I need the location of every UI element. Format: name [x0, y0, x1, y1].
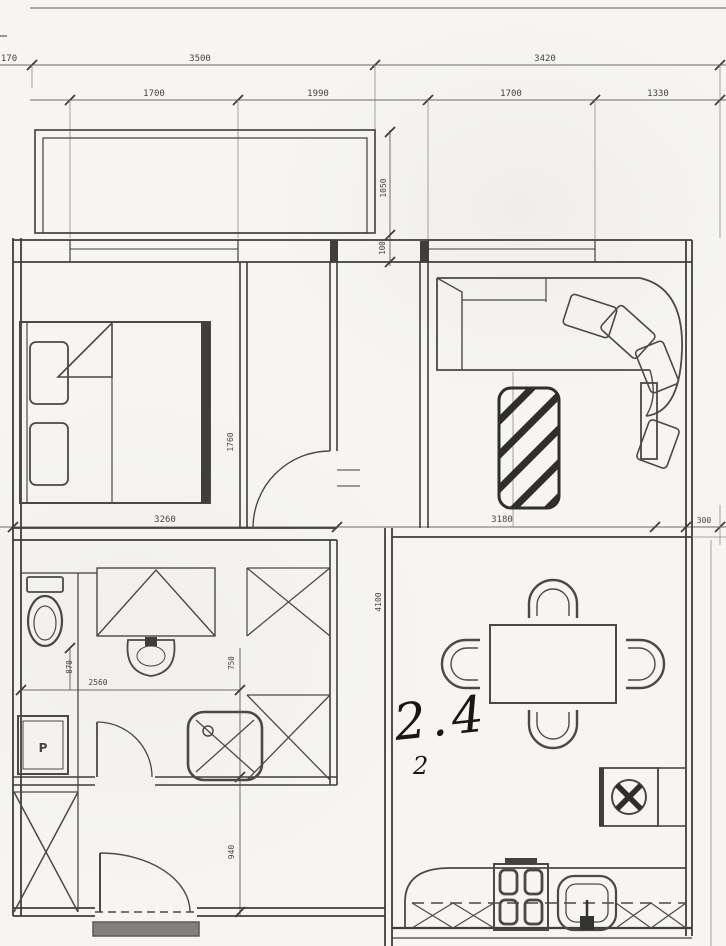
burner — [500, 870, 517, 894]
walls — [13, 238, 726, 946]
duct-shaft — [97, 568, 215, 636]
dim-hall-depth: 940 — [227, 845, 236, 860]
dim-right-edge: 300 — [697, 516, 712, 525]
dim-mid-right: 3180 — [491, 515, 513, 525]
door-sill — [93, 922, 199, 936]
rug — [470, 286, 600, 586]
closet-upper — [247, 568, 330, 636]
dining-table — [490, 625, 616, 703]
burner — [525, 870, 542, 894]
shower — [188, 712, 262, 780]
dining-chair — [442, 640, 480, 688]
dim-offset-left: 170 — [1, 54, 17, 64]
paper-edge-lines — [0, 8, 726, 36]
pillow — [30, 423, 68, 485]
vent-fan-unit — [599, 768, 686, 826]
dim-hall-span: 1990 — [307, 89, 329, 99]
tap — [145, 637, 157, 646]
hallway — [14, 792, 199, 936]
bedroom-door-arc — [253, 451, 330, 528]
dim-bedroom-depth: 1760 — [226, 432, 235, 451]
washbasin — [127, 637, 174, 676]
cushion — [599, 304, 656, 360]
room-note: 2.4 — [390, 684, 491, 752]
floor-plan-scan: 170 3500 3420 1700 1990 1700 1330 1050 1… — [0, 0, 726, 946]
washer-label: P — [39, 741, 48, 755]
dim-window-bedroom: 1700 — [143, 89, 165, 99]
bathroom-door — [97, 722, 152, 777]
cabinet-x — [412, 903, 494, 928]
dim-bath-width: 2560 — [88, 678, 107, 687]
dining-chair — [529, 710, 577, 748]
dining-chair — [529, 580, 577, 618]
wardrobe — [14, 792, 78, 912]
wall-pier — [420, 241, 429, 262]
living-room — [437, 278, 682, 586]
dimension-labels: 170 3500 3420 1700 1990 1700 1330 1050 1… — [1, 54, 712, 859]
closet-lower — [247, 695, 330, 780]
dim-balcony-depth: 1050 — [379, 178, 388, 197]
dim-dining-depth: 4100 — [374, 592, 383, 611]
dim-bath-left-depth: 870 — [65, 660, 74, 674]
dim-mid-left: 3260 — [154, 515, 176, 525]
dim-window-living: 1700 — [500, 89, 522, 99]
wall-pier — [330, 240, 338, 262]
toilet — [27, 577, 63, 646]
tap — [580, 916, 594, 930]
cabinet-x — [616, 903, 686, 928]
entrance-door — [93, 853, 199, 936]
floor-note: 2 — [412, 752, 428, 780]
dim-top-right: 3420 — [534, 54, 556, 64]
dim-right-span: 1330 — [647, 89, 669, 99]
dim-balcony-sill: 100 — [378, 241, 387, 255]
counter — [405, 868, 686, 928]
dim-bath-right-depth: 750 — [227, 656, 236, 670]
balcony — [35, 130, 375, 233]
kitchen — [405, 768, 686, 930]
armrest — [437, 278, 462, 370]
bedroom-bed — [20, 322, 210, 503]
handwritten-notes: 2.4 2 — [390, 684, 491, 780]
dining-chair — [626, 640, 664, 688]
dim-top-left: 3500 — [189, 54, 211, 64]
blanket-fold — [58, 323, 112, 377]
cushion — [636, 419, 680, 469]
